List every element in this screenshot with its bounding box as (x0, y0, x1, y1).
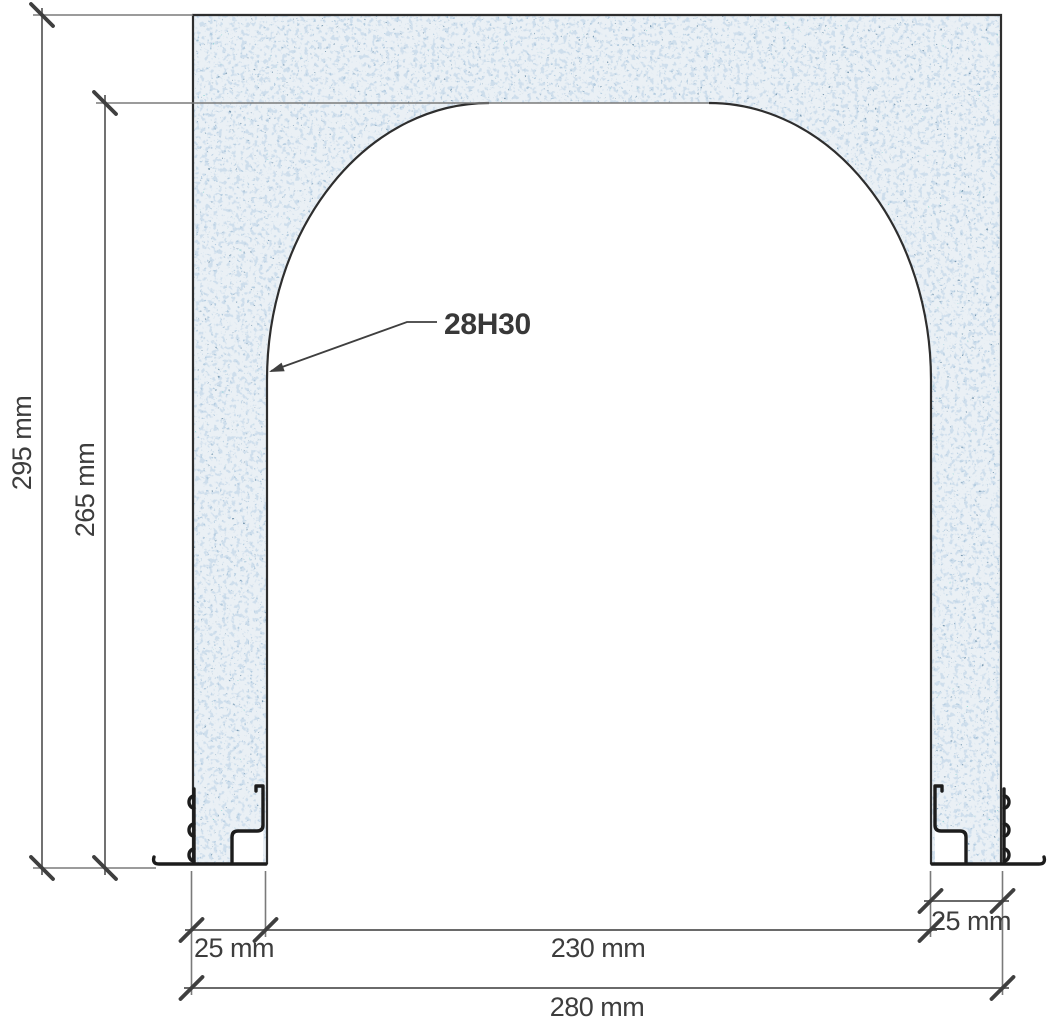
right-foot-notch (935, 831, 965, 863)
dim-opening-height: 265 mm (70, 92, 709, 879)
arch-body (193, 15, 1001, 864)
speckle-texture (193, 15, 1001, 864)
dim-overall-width: 280 mm (181, 977, 1014, 1022)
leader-arrowhead-icon (267, 363, 284, 377)
dim-overall-width-label: 280 mm (550, 992, 645, 1022)
dim-opening-height-label: 265 mm (70, 443, 100, 538)
component-annotation-label: 28H30 (444, 308, 531, 341)
dim-overall-height-label: 295 mm (7, 396, 37, 491)
component-annotation: 28H30 (267, 308, 530, 376)
dim-opening-width-label: 230 mm (551, 933, 646, 963)
dim-right-wall-label: 25 mm (931, 906, 1011, 936)
dim-overall-height: 295 mm (7, 4, 193, 879)
left-foot-notch (233, 831, 263, 863)
drawing-svg: 295 mm 265 mm 25 mm 230 mm 25 mm 280 mm (0, 0, 1054, 1033)
dim-right-wall: 25 mm (920, 890, 1014, 936)
dim-left-wall-label: 25 mm (194, 933, 274, 963)
technical-drawing-canvas: 295 mm 265 mm 25 mm 230 mm 25 mm 280 mm (0, 0, 1054, 1033)
leader-line (271, 322, 437, 371)
dim-left-wall-and-opening-width: 25 mm 230 mm (181, 919, 942, 963)
